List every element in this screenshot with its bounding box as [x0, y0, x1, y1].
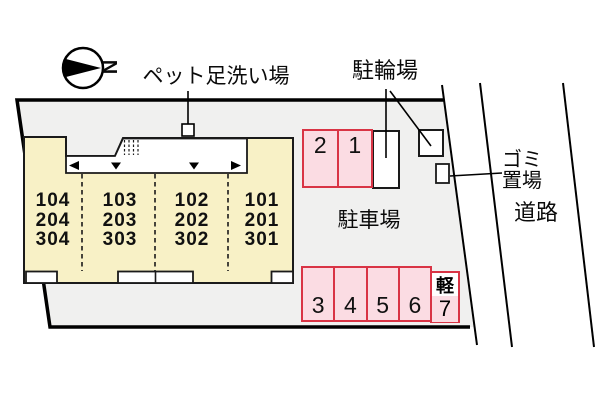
room-number: 203: [92, 211, 148, 231]
building-step: [272, 272, 294, 284]
garbage-leader-line: [450, 173, 502, 176]
room-number: 201: [234, 211, 290, 231]
room-number: 304: [25, 230, 81, 250]
parking-space-5: 5: [366, 268, 398, 320]
parking-row-bottom: 3 4 5 6: [301, 266, 432, 322]
room-number: 202: [164, 211, 220, 231]
plan-drawing: [0, 0, 600, 400]
pet-wash-marker: [182, 124, 194, 136]
north-label: N: [99, 57, 119, 77]
unit-rooms-101: 101 201 301: [234, 191, 290, 250]
road-edge-line: [563, 83, 594, 347]
parking-space-3: 3: [303, 268, 333, 320]
building-step: [26, 272, 57, 284]
room-number: 101: [234, 191, 290, 211]
room-number: 303: [92, 230, 148, 250]
room-number: 103: [92, 191, 148, 211]
unit-rooms-103: 103 203 303: [92, 191, 148, 250]
road-edge-line: [480, 83, 512, 347]
room-number: 104: [25, 191, 81, 211]
parking-space-7-kei: 軽 7: [430, 271, 460, 323]
garbage-area-label: ゴミ 置場: [502, 150, 542, 191]
kei-tag: 軽: [432, 273, 458, 296]
site-plan: N ペット足洗い場 駐輪場 ゴミ 置場 道路 駐車場 104 204 304 1…: [0, 0, 600, 400]
unit-rooms-102: 102 202 302: [164, 191, 220, 250]
garbage-box: [436, 164, 449, 183]
parking-space-6: 6: [398, 268, 430, 320]
room-number: 204: [25, 211, 81, 231]
unit-rooms-104: 104 204 304: [25, 191, 81, 250]
parking-space-7: 7: [432, 296, 458, 322]
north-arrow-icon: [63, 48, 103, 88]
parking-lot-label: 駐車場: [334, 210, 404, 231]
room-number: 102: [164, 191, 220, 211]
parking-space-2: 2: [304, 131, 337, 186]
parking-space-1: 1: [337, 131, 372, 186]
room-number: 301: [234, 230, 290, 250]
parking-row-top: 2 1: [302, 129, 373, 188]
pet-wash-label: ペット足洗い場: [137, 66, 295, 87]
room-number: 302: [164, 230, 220, 250]
parking-space-4: 4: [333, 268, 365, 320]
road-label: 道路: [514, 202, 558, 224]
bicycle-parking-label: 駐輪場: [349, 60, 421, 82]
